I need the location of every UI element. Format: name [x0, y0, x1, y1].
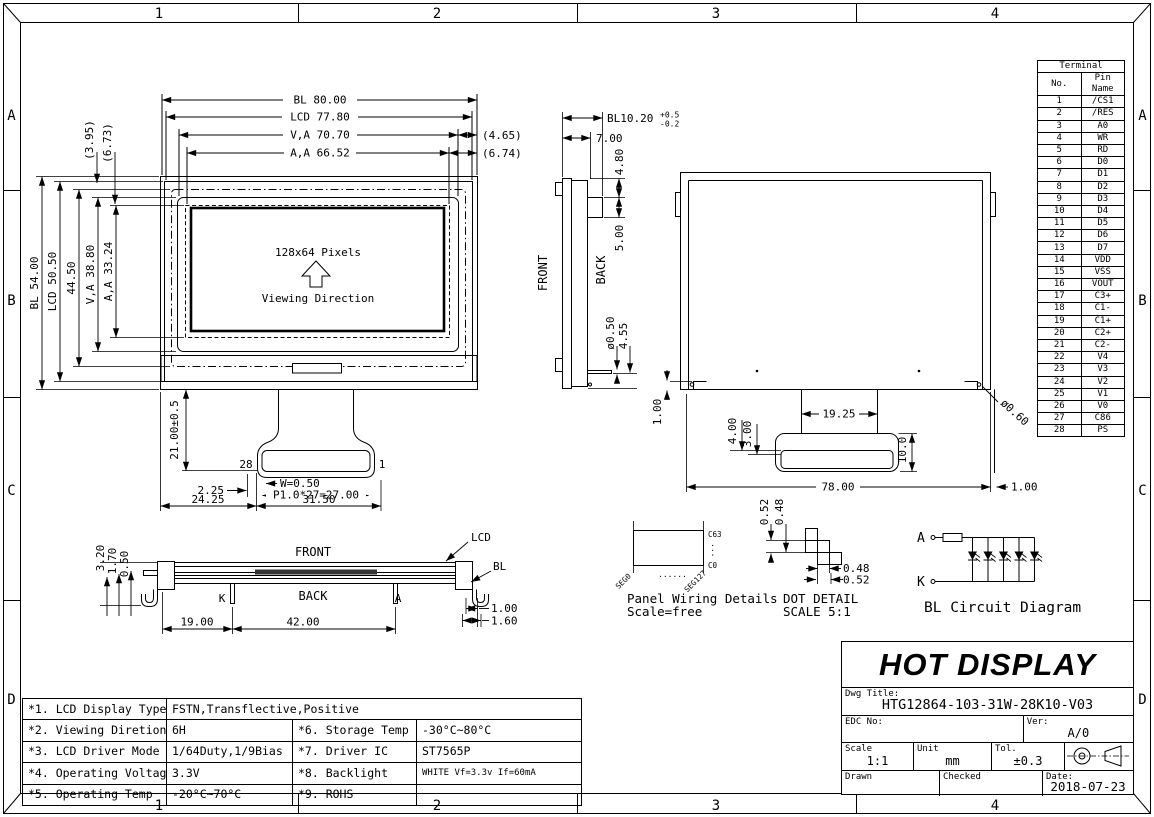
zone-row-a-left: A — [7, 108, 16, 124]
pin-number: 8 — [1038, 181, 1082, 193]
dim-boss-diameter-back: ø0.60 — [998, 397, 1031, 429]
pin-number: 16 — [1038, 279, 1082, 291]
bottom-side-view: FRONT BACK K A LCD BL 3.20 1.70 0.50 19.… — [94, 531, 518, 634]
pin-name: RD — [1081, 144, 1125, 156]
spec-value: 6H — [167, 720, 293, 741]
pin-name: V3 — [1081, 364, 1125, 376]
pin-number: 6 — [1038, 157, 1082, 169]
dim-lcd-height: LCD 50.50 — [46, 252, 59, 312]
pin-name: C3+ — [1081, 291, 1125, 303]
table-row: 15 VSS — [1038, 266, 1125, 278]
drawing-number: HTG12864-103-31W-28K10-V03 — [842, 697, 1133, 713]
table-row: *5. Operating Temp -20°C~70°C *9. ROHS — [23, 784, 582, 805]
terminal-table: Terminal No. Pin Name 1 /CS1 2 /RES 3 A0… — [1037, 60, 1125, 437]
dim-va-width: V,A 70.70 — [290, 129, 350, 142]
pin-name: /RES — [1081, 108, 1125, 120]
table-row: 9 D3 — [1038, 193, 1125, 205]
table-row: *3. LCD Driver Mode 1/64Duty,1/9Bias *7.… — [23, 741, 582, 762]
table-row: 24 V2 — [1038, 376, 1125, 388]
pin-number: 11 — [1038, 218, 1082, 230]
led-icon — [984, 552, 996, 562]
back-dot-right — [918, 370, 921, 373]
edc-no-label: EDC No: — [845, 717, 883, 727]
pin-number: 9 — [1038, 193, 1082, 205]
spec-label: *1. LCD Display Type — [23, 699, 167, 720]
pin-name: V1 — [1081, 388, 1125, 400]
dim-gap-right-1: (4.65) — [482, 129, 522, 142]
bview-lcd-callout: LCD — [471, 531, 491, 544]
pin-1-label: 1 — [379, 458, 386, 471]
dim-boss-diameter: ø0.50 — [604, 316, 617, 349]
dim-fpc-gap: 19.25 — [822, 408, 855, 421]
dim-wall-right: 1.00 — [1011, 481, 1038, 494]
backlight-slot — [293, 364, 342, 374]
circuit-anode-label: A — [917, 531, 925, 546]
dim-gap-left-2: (6.73) — [101, 123, 114, 163]
dot-dim-h2: 0.48 — [773, 499, 786, 526]
pin-number: 2 — [1038, 108, 1082, 120]
panel-wiring-scale: Scale=free — [627, 604, 702, 619]
pin-number: 13 — [1038, 242, 1082, 254]
bview-back-label: BACK — [299, 589, 329, 603]
bview-left-end-seal — [158, 562, 175, 590]
scale-value: 1:1 — [842, 754, 913, 768]
pin-name: C1+ — [1081, 315, 1125, 327]
active-area-outline — [186, 206, 450, 338]
side-top-tab — [556, 183, 563, 196]
dim-connector-offset: 24.25 — [191, 493, 224, 506]
dim-window-height: 44.50 — [65, 261, 78, 294]
terminal-rows: 1 /CS1 2 /RES 3 A0 4 WR 5 RD 6 D0 7 D1 8… — [1038, 96, 1125, 437]
bview-fpc-fold — [144, 571, 158, 576]
dot-dim-h1: 0.52 — [758, 499, 771, 526]
back-dot-left — [756, 370, 759, 373]
dim-bump-height: 5.00 — [613, 225, 626, 252]
led-icon — [999, 552, 1011, 562]
cathode-terminal — [931, 580, 935, 584]
scale-label: Scale — [845, 744, 872, 754]
back-view: 19.25 1.00 4.00 3.00 10.0 78.00 1.00 ø0.… — [651, 173, 1038, 494]
dim-bl-height: BL 54.00 — [28, 257, 41, 310]
pin-name: VOUT — [1081, 279, 1125, 291]
pin-number: 7 — [1038, 169, 1082, 181]
spec-label: *3. LCD Driver Mode — [23, 741, 167, 762]
pin-number: 24 — [1038, 376, 1082, 388]
spec-label: *4. Operating Voltage — [23, 763, 167, 784]
led-icon — [1030, 552, 1042, 562]
pin-number: 15 — [1038, 266, 1082, 278]
spec-table: *1. LCD Display Type FSTN,Transflective,… — [22, 698, 582, 806]
dot-dim-w2: 0.52 — [843, 574, 870, 587]
title-block: HOT DISPLAY Dwg Title: HTG12864-103-31W-… — [841, 641, 1134, 795]
spec-value: 1/64Duty,1/9Bias — [167, 741, 293, 762]
zone-col-4-top: 4 — [991, 6, 999, 22]
led-branches — [968, 538, 1042, 582]
pin-name: VSS — [1081, 266, 1125, 278]
zone-row-b-left: B — [7, 293, 15, 309]
zone-row-d-left: D — [7, 692, 15, 708]
pin-name: D5 — [1081, 218, 1125, 230]
table-row: *1. LCD Display Type FSTN,Transflective,… — [23, 699, 582, 720]
pin-name: D7 — [1081, 242, 1125, 254]
checked-label: Checked — [943, 772, 981, 782]
side-boss-pin — [588, 371, 612, 374]
dim-stack-050: 0.50 — [118, 551, 131, 578]
pixel-count-label: 128x64 Pixels — [275, 246, 361, 259]
pin-name: V4 — [1081, 352, 1125, 364]
side-bottom-tab — [556, 359, 563, 372]
pin-28-label: 28 — [239, 458, 252, 471]
dim-wall-left: 1.00 — [651, 399, 664, 426]
side-connector-bump — [588, 198, 603, 218]
zone-col-3-bottom: 3 — [712, 798, 720, 814]
table-row: 13 D7 — [1038, 242, 1125, 254]
table-row: 18 C1- — [1038, 303, 1125, 315]
dim-connector-width: 31.50 — [302, 493, 335, 506]
back-connector-body — [776, 434, 899, 472]
zone-col-4-bottom: 4 — [991, 798, 999, 814]
table-row: 26 V0 — [1038, 400, 1125, 412]
panel-wiring-detail: C63 ... C0 SEG0 SEG127 ...... Panel Wiri… — [614, 521, 778, 619]
zone-col-2-top: 2 — [433, 6, 441, 22]
bview-left-hook — [142, 590, 158, 607]
spec-label: *9. ROHS — [293, 784, 417, 805]
back-right-tab — [991, 193, 996, 217]
tolerance-label: Tol. — [995, 744, 1017, 754]
pin-number: 4 — [1038, 132, 1082, 144]
dim-gap-left-1: (3.95) — [83, 120, 96, 160]
back-step-right — [965, 382, 978, 390]
wiring-c63-label: C63 — [708, 530, 722, 539]
table-row: 17 C3+ — [1038, 291, 1125, 303]
spec-value: ST7565P — [417, 741, 582, 762]
dim-va-height: V,A 38.80 — [84, 245, 97, 305]
spec-value: -30°C~80°C — [417, 720, 582, 741]
table-row: 14 VDD — [1038, 254, 1125, 266]
pin-name: D0 — [1081, 157, 1125, 169]
zone-row-b-right: B — [1138, 293, 1146, 309]
zone-row-d-right: D — [1138, 692, 1146, 708]
side-lcd-glass — [563, 179, 572, 389]
pin-number: 27 — [1038, 413, 1082, 425]
zone-row-a-right: A — [1138, 108, 1147, 124]
dim-conn-3: 3.00 — [741, 421, 754, 448]
circuit-cathode-label: K — [917, 575, 925, 590]
pin-number: 20 — [1038, 327, 1082, 339]
table-row: 4 WR — [1038, 132, 1125, 144]
table-row: 5 RD — [1038, 144, 1125, 156]
dim-aa-height: A,A 33.24 — [102, 241, 115, 301]
pin-number: 28 — [1038, 425, 1082, 437]
dim-aa-width: A,A 66.52 — [290, 147, 350, 160]
zone-col-3-top: 3 — [712, 6, 720, 22]
bview-right-hook — [473, 590, 489, 607]
pin-name: WR — [1081, 132, 1125, 144]
pin-number: 17 — [1038, 291, 1082, 303]
pixel-area-outline — [191, 208, 444, 331]
dim-hook-100: 1.00 — [491, 602, 518, 615]
table-row: 22 V4 — [1038, 352, 1125, 364]
pin-name: V2 — [1081, 376, 1125, 388]
pin-name: C1- — [1081, 303, 1125, 315]
wiring-vdots: ... — [710, 543, 719, 557]
bview-cathode-pin — [231, 584, 235, 604]
table-row: 10 D4 — [1038, 205, 1125, 217]
pin-number: 23 — [1038, 364, 1082, 376]
table-row: 19 C1+ — [1038, 315, 1125, 327]
side-back-label: BACK — [594, 255, 608, 285]
pin-name: D4 — [1081, 205, 1125, 217]
table-row: 11 D5 — [1038, 218, 1125, 230]
table-row: 12 D6 — [1038, 230, 1125, 242]
tolerance-value: ±0.3 — [992, 754, 1064, 768]
side-view: BL10.20 +0.5 -0.2 7.00 4.80 5.00 FRONT B… — [536, 111, 679, 389]
pin-number: 14 — [1038, 254, 1082, 266]
pin-number: 5 — [1038, 144, 1082, 156]
table-row: 1 /CS1 — [1038, 96, 1125, 108]
pin-number: 18 — [1038, 303, 1082, 315]
bview-bl-callout: BL — [493, 560, 507, 573]
unit-label: Unit — [917, 744, 939, 754]
dim-thickness-tol-minus: -0.2 — [660, 120, 679, 129]
bl-circuit-diagram: A K BL Circuit Diagram — [917, 531, 1081, 616]
pin-number: 19 — [1038, 315, 1082, 327]
pin-number: 1 — [1038, 96, 1082, 108]
table-row: 16 VOUT — [1038, 279, 1125, 291]
bview-polarizer — [255, 570, 377, 575]
pin-name: D2 — [1081, 181, 1125, 193]
back-step-left — [694, 382, 707, 390]
back-left-tab — [676, 193, 681, 217]
front-view: 128x64 Pixels Viewing Direction 28 1 BL … — [28, 94, 522, 512]
wiring-dots: ...... — [658, 570, 687, 579]
dim-thickness: BL10.20 — [607, 112, 653, 125]
pin-name: D6 — [1081, 230, 1125, 242]
pin-number: 3 — [1038, 120, 1082, 132]
dim-thickness-tol-plus: +0.5 — [660, 111, 679, 120]
table-row: 2 /RES — [1038, 108, 1125, 120]
spec-value — [417, 784, 582, 805]
pin-name: /CS1 — [1081, 96, 1125, 108]
bview-front-label: FRONT — [295, 545, 331, 559]
dot-detail-scale: SCALE 5:1 — [783, 604, 851, 619]
pin-name: C2+ — [1081, 327, 1125, 339]
table-row: 28 PS — [1038, 425, 1125, 437]
dim-body-thickness: 7.00 — [596, 132, 623, 145]
spec-label: *6. Storage Temp — [293, 720, 417, 741]
spec-value: 3.3V — [167, 763, 293, 784]
viewing-area-outline — [178, 198, 459, 352]
led-icon — [1015, 552, 1027, 562]
spec-label: *7. Driver IC — [293, 741, 417, 762]
fpc-connector-pins — [262, 451, 370, 472]
date-value: 2018-07-23 — [1043, 779, 1133, 794]
viewing-direction-label: Viewing Direction — [262, 292, 375, 305]
resistor-icon — [943, 534, 962, 542]
pin-number: 21 — [1038, 339, 1082, 351]
back-outline — [681, 173, 991, 390]
dim-bl-width: BL 80.00 — [294, 94, 347, 107]
pin-name: PS — [1081, 425, 1125, 437]
pin-number: 25 — [1038, 388, 1082, 400]
wiring-seg0-label: SEG0 — [614, 571, 633, 590]
back-connector-pins — [781, 451, 893, 469]
dim-back-width: 78.00 — [821, 481, 854, 494]
pin-number: 10 — [1038, 205, 1082, 217]
table-row: *2. Viewing Diretion 6H *6. Storage Temp… — [23, 720, 582, 741]
table-row: 27 C86 — [1038, 413, 1125, 425]
zone-row-c-left: C — [7, 483, 15, 499]
pin-name: D3 — [1081, 193, 1125, 205]
spec-label: *2. Viewing Diretion — [23, 720, 167, 741]
anode-terminal — [931, 536, 935, 540]
zone-col-1-top: 1 — [155, 6, 163, 22]
pin-name: VDD — [1081, 254, 1125, 266]
table-row: 8 D2 — [1038, 181, 1125, 193]
spec-value: WHITE Vf=3.3v If=60mA — [417, 763, 582, 784]
terminal-table-title: Terminal — [1038, 61, 1125, 73]
table-row: 3 A0 — [1038, 120, 1125, 132]
dim-fpc-length: 21.00±0.5 — [168, 400, 181, 460]
pin-number: 12 — [1038, 230, 1082, 242]
dim-pin-span: 42.00 — [286, 616, 319, 629]
spec-label: *8. Backlight — [293, 763, 417, 784]
dim-gap-right-2: (6.74) — [482, 147, 522, 160]
dim-boss-position: 4.55 — [617, 323, 630, 350]
pin-name: A0 — [1081, 120, 1125, 132]
dim-lcd-width: LCD 77.80 — [290, 111, 350, 124]
table-row: 20 C2+ — [1038, 327, 1125, 339]
dim-bump-offset: 4.80 — [613, 149, 626, 176]
pin-name: V0 — [1081, 400, 1125, 412]
dot-detail-dims — [766, 524, 843, 584]
back-view-dims — [667, 370, 1008, 493]
unit-value: mm — [914, 754, 991, 768]
pin-name: C2- — [1081, 339, 1125, 351]
led-icon — [968, 552, 980, 562]
fpc-cable — [258, 390, 375, 478]
pin-number: 26 — [1038, 400, 1082, 412]
zone-row-c-right: C — [1138, 483, 1146, 499]
terminal-col-pin-name: Pin Name — [1081, 73, 1125, 96]
table-row: 23 V3 — [1038, 364, 1125, 376]
side-pin-dot — [589, 383, 592, 386]
spec-label: *5. Operating Temp — [23, 784, 167, 805]
pin-number: 22 — [1038, 352, 1082, 364]
version-value: A/0 — [1024, 726, 1133, 740]
pin-name: C86 — [1081, 413, 1125, 425]
dim-conn-height: 10.0 — [896, 437, 909, 464]
company-name: HOT DISPLAY — [842, 642, 1133, 688]
spec-value: -20°C~70°C — [167, 784, 293, 805]
bview-right-end-seal — [456, 562, 473, 590]
bview-k-label: K — [219, 592, 226, 605]
table-row: 6 D0 — [1038, 157, 1125, 169]
bl-circuit-title: BL Circuit Diagram — [924, 600, 1081, 616]
table-row: 7 D1 — [1038, 169, 1125, 181]
dim-conn-4: 4.00 — [726, 418, 739, 445]
window-outline — [172, 190, 466, 367]
side-backlight-body — [572, 181, 588, 387]
dim-hook-160: 1.60 — [491, 615, 518, 628]
table-row: 25 V1 — [1038, 388, 1125, 400]
spec-value: FSTN,Transflective,Positive — [167, 699, 582, 720]
viewing-direction-arrow-icon — [302, 261, 330, 287]
drawn-label: Drawn — [845, 772, 872, 782]
table-row: 21 C2- — [1038, 339, 1125, 351]
terminal-col-no: No. — [1038, 73, 1082, 96]
table-row: *4. Operating Voltage 3.3V *8. Backlight… — [23, 763, 582, 784]
dim-k-offset: 19.00 — [180, 616, 213, 629]
drawing-sheet: 1 2 3 4 1 2 3 4 A B C D A B C D 128x64 P… — [0, 0, 1154, 817]
pin-name: D1 — [1081, 169, 1125, 181]
wiring-c0-label: C0 — [708, 561, 718, 570]
side-front-label: FRONT — [536, 255, 550, 291]
projection-symbol-icon — [1065, 743, 1132, 769]
panel-wiring-rect — [634, 531, 704, 566]
bview-a-label: A — [395, 592, 402, 605]
